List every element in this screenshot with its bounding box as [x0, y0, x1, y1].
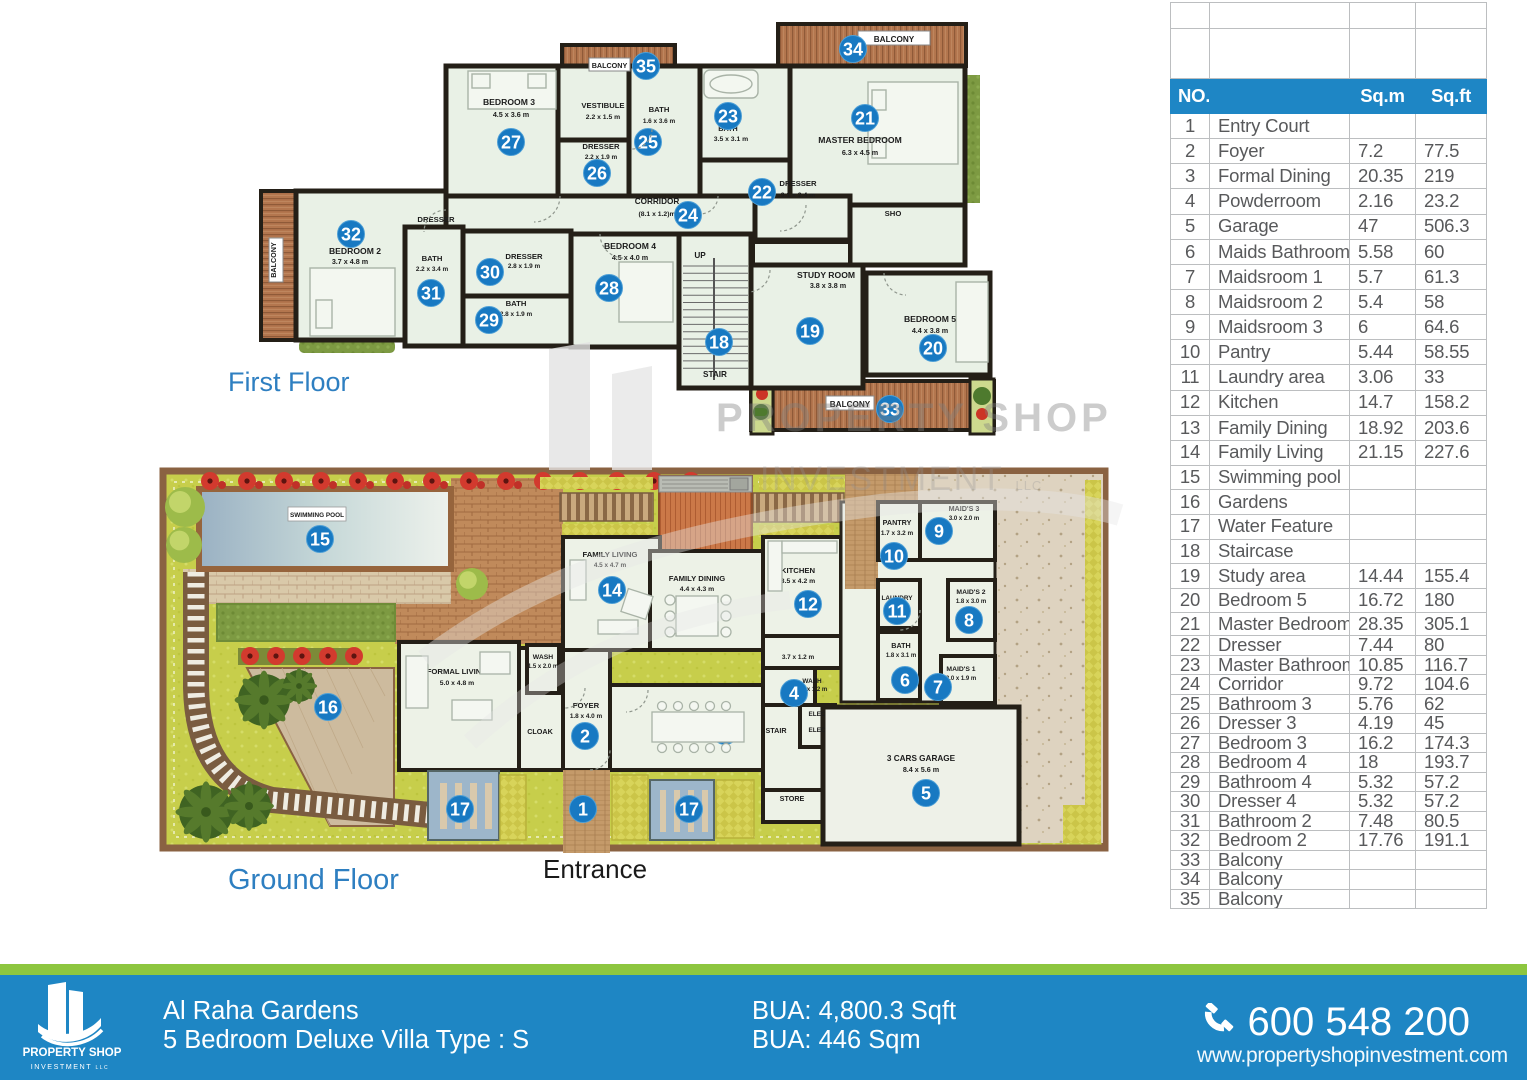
svg-text:25: 25 [638, 133, 658, 153]
svg-text:PROPERTY SHOP: PROPERTY SHOP [23, 1047, 122, 1059]
svg-text:15: 15 [310, 530, 330, 550]
svg-text:BEDROOM 2: BEDROOM 2 [329, 246, 381, 256]
svg-text:28: 28 [599, 279, 619, 299]
svg-text:20: 20 [923, 339, 943, 359]
svg-text:24: 24 [678, 206, 698, 226]
svg-text:DRESSER: DRESSER [582, 142, 620, 151]
svg-text:2.2 x 3.4 m: 2.2 x 3.4 m [416, 266, 449, 273]
svg-text:6.3 x 4.5 m: 6.3 x 4.5 m [842, 148, 878, 157]
svg-text:BALCONY: BALCONY [269, 242, 278, 278]
svg-text:21: 21 [855, 109, 875, 129]
svg-text:30: 30 [480, 263, 500, 283]
svg-text:26: 26 [587, 164, 607, 184]
svg-text:BEDROOM 5: BEDROOM 5 [904, 314, 956, 324]
svg-text:10: 10 [884, 547, 904, 567]
svg-text:3 CARS GARAGE: 3 CARS GARAGE [887, 754, 956, 763]
svg-text:STUDY ROOM: STUDY ROOM [797, 270, 855, 280]
svg-text:BATH: BATH [506, 299, 527, 308]
svg-text:16: 16 [318, 698, 338, 718]
svg-text:17: 17 [450, 800, 470, 820]
svg-text:3.8 x 3.8 m: 3.8 x 3.8 m [810, 281, 846, 290]
svg-text:11: 11 [887, 602, 906, 622]
svg-text:2.2 x 1.5 m: 2.2 x 1.5 m [586, 114, 620, 121]
svg-text:1.8 x 4.0 m: 1.8 x 4.0 m [570, 713, 603, 720]
svg-text:BALCONY: BALCONY [592, 61, 628, 70]
svg-text:1.7 x 3.2 m: 1.7 x 3.2 m [881, 530, 914, 537]
svg-text:PANTRY: PANTRY [883, 518, 912, 527]
svg-text:FORMAL LIVING: FORMAL LIVING [427, 667, 488, 676]
svg-text:FAMILY DINING: FAMILY DINING [669, 574, 725, 583]
svg-text:BATH: BATH [891, 641, 910, 650]
svg-text:3.5 x 4.2 m: 3.5 x 4.2 m [781, 578, 815, 585]
svg-text:KITCHEN: KITCHEN [781, 566, 816, 575]
svg-text:8: 8 [964, 611, 974, 631]
svg-text:1: 1 [578, 800, 588, 820]
svg-text:4.4 x 4.3 m: 4.4 x 4.3 m [680, 586, 714, 593]
svg-text:8.4 x 5.6 m: 8.4 x 5.6 m [903, 765, 939, 774]
svg-text:SWIMMING POOL: SWIMMING POOL [290, 512, 344, 519]
svg-text:7: 7 [933, 678, 943, 698]
svg-text:(8.1 x 1.2)m: (8.1 x 1.2)m [638, 211, 675, 218]
svg-text:3.7 x 4.8 m: 3.7 x 4.8 m [332, 257, 368, 266]
svg-text:31: 31 [421, 284, 441, 304]
svg-text:18: 18 [709, 333, 729, 353]
svg-text:6: 6 [900, 671, 910, 691]
svg-text:ELEC: ELEC [808, 727, 825, 734]
svg-text:DRESSER: DRESSER [417, 215, 455, 224]
svg-text:SHO: SHO [885, 209, 902, 218]
svg-text:5.0 x 4.8 m: 5.0 x 4.8 m [440, 680, 474, 687]
svg-text:ELEC: ELEC [808, 711, 825, 718]
svg-text:DRESSER: DRESSER [505, 252, 543, 261]
svg-text:3.7 x 1.2 m: 3.7 x 1.2 m [782, 654, 815, 661]
svg-text:UP: UP [694, 251, 706, 260]
svg-text:1.8 x 3.0 m: 1.8 x 3.0 m [956, 599, 986, 605]
svg-text:2.8 x 1.9 m: 2.8 x 1.9 m [508, 263, 541, 270]
svg-text:5: 5 [921, 784, 931, 804]
svg-text:STORE: STORE [780, 794, 805, 803]
svg-text:WASH: WASH [802, 678, 822, 685]
svg-text:14: 14 [602, 581, 622, 601]
svg-text:19: 19 [800, 322, 820, 342]
svg-text:STAIR: STAIR [765, 726, 787, 735]
svg-text:DRESSER: DRESSER [779, 179, 817, 188]
svg-text:1.8 x 3.1 m: 1.8 x 3.1 m [886, 653, 916, 659]
svg-text:MAID'S 1: MAID'S 1 [946, 666, 975, 673]
svg-text:MASTER BEDROOM: MASTER BEDROOM [818, 135, 902, 145]
svg-text:3.0 x 2.0 m: 3.0 x 2.0 m [949, 516, 979, 522]
svg-text:17: 17 [679, 800, 699, 820]
svg-text:4: 4 [789, 684, 799, 704]
svg-text:29: 29 [479, 311, 499, 331]
svg-text:INVESTMENT LLC: INVESTMENT LLC [31, 1062, 109, 1071]
svg-text:34: 34 [843, 40, 863, 60]
svg-text:3.1 x 2.4 m: 3.1 x 2.4 m [781, 192, 815, 199]
svg-text:32: 32 [341, 225, 361, 245]
svg-text:1.6 x 3.6 m: 1.6 x 3.6 m [643, 118, 676, 125]
svg-text:STAIR: STAIR [703, 370, 727, 379]
svg-text:CLOAK: CLOAK [527, 727, 553, 736]
svg-text:BATH: BATH [422, 254, 443, 263]
svg-text:VESTIBULE: VESTIBULE [581, 101, 624, 110]
svg-text:BALCONY: BALCONY [874, 35, 915, 44]
svg-text:3.5 x 3.1 m: 3.5 x 3.1 m [714, 136, 748, 143]
svg-text:BEDROOM 4: BEDROOM 4 [604, 241, 656, 251]
svg-text:9: 9 [934, 522, 944, 542]
svg-text:12: 12 [798, 595, 818, 615]
svg-text:BEDROOM 3: BEDROOM 3 [483, 97, 535, 107]
svg-text:2: 2 [580, 727, 590, 747]
svg-text:MAID'S 2: MAID'S 2 [956, 589, 985, 596]
svg-text:FOYER: FOYER [573, 701, 600, 710]
svg-text:BATH: BATH [649, 105, 670, 114]
svg-text:23: 23 [718, 107, 738, 127]
svg-text:27: 27 [501, 133, 521, 153]
svg-text:4.5 x 3.6 m: 4.5 x 3.6 m [493, 110, 529, 119]
svg-text:22: 22 [752, 183, 772, 203]
svg-text:WASH: WASH [533, 654, 553, 661]
svg-text:35: 35 [636, 57, 656, 77]
svg-text:CORRIDOR: CORRIDOR [635, 197, 680, 206]
svg-text:2.8 x 1.9 m: 2.8 x 1.9 m [500, 311, 533, 318]
svg-text:4.4 x 3.8 m: 4.4 x 3.8 m [912, 326, 948, 335]
